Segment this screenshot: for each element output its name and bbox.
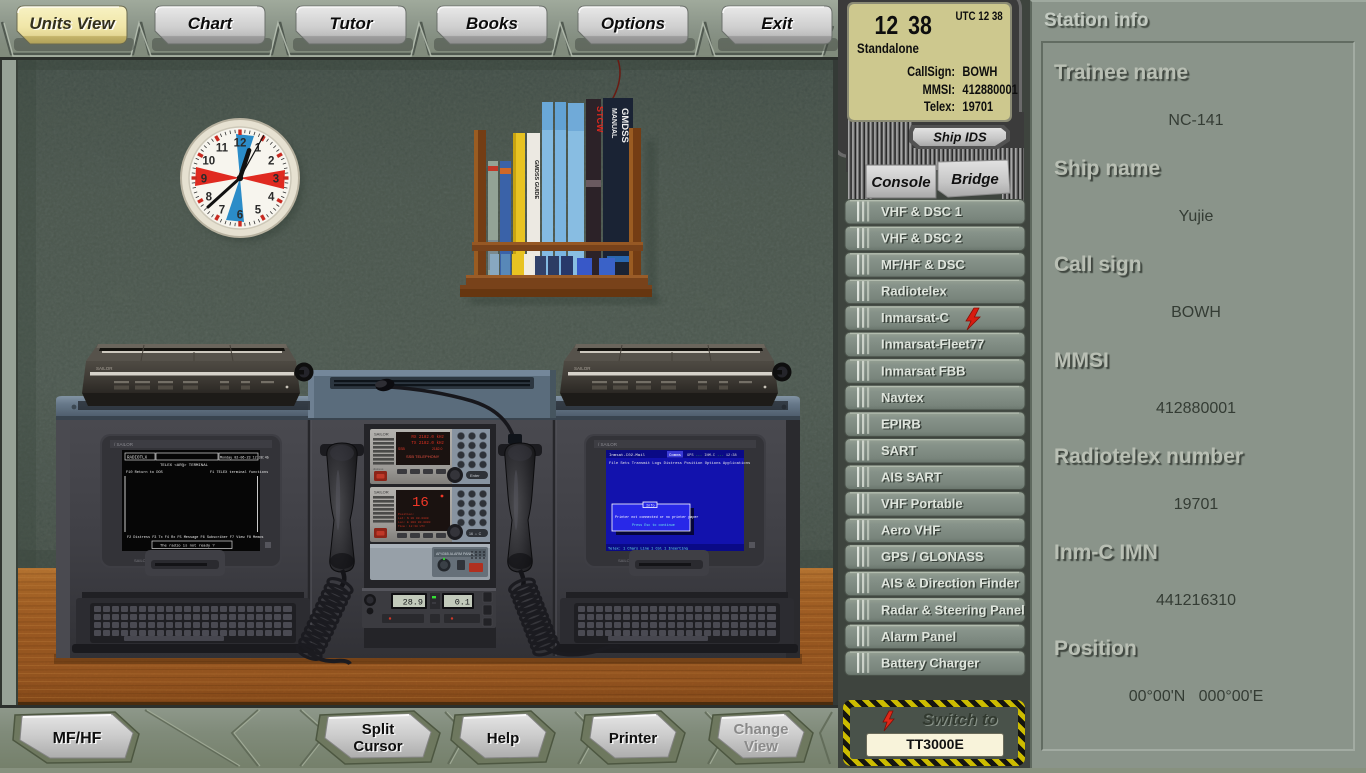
svg-text:19701: 19701 xyxy=(962,99,993,114)
svg-text:SSB: SSB xyxy=(398,447,406,451)
svg-text:Navtex: Navtex xyxy=(881,390,924,405)
svg-text:Lon: E 000 00.0000: Lon: E 000 00.0000 xyxy=(398,521,431,524)
svg-text:Time: 12:38 UTC: Time: 12:38 UTC xyxy=(398,524,425,528)
svg-text:distress: distress xyxy=(373,467,384,471)
svg-text:File Sets Transmit Logs Distre: File Sets Transmit Logs Distress Positio… xyxy=(609,461,750,466)
svg-text:Printer not connected or no pr: Printer not connected or no printer pape… xyxy=(615,515,698,520)
svg-text:RX 2182.0 kHz: RX 2182.0 kHz xyxy=(411,435,444,440)
svg-text:The radio is not ready ?: The radio is not ready ? xyxy=(160,544,215,549)
svg-text:TX 2182.0 kHz: TX 2182.0 kHz xyxy=(411,441,444,446)
svg-text:TELEX <ARQ> TERMINAL: TELEX <ARQ> TERMINAL xyxy=(160,463,209,468)
svg-text:Printer: Printer xyxy=(609,730,658,747)
svg-text:MANUAL: MANUAL xyxy=(610,108,617,139)
svg-text:Press Esc to continue: Press Esc to continue xyxy=(632,523,675,528)
svg-text:SAILOR: SAILOR xyxy=(374,432,389,437)
svg-text:8: 8 xyxy=(206,192,213,204)
svg-text:Split: Split xyxy=(362,721,395,738)
svg-text:0.1: 0.1 xyxy=(455,598,470,608)
svg-text:EPIRB: EPIRB xyxy=(881,416,921,431)
svg-text:412880001: 412880001 xyxy=(962,82,1017,97)
svg-text:16: 16 xyxy=(412,495,429,511)
svg-text:Exit: Exit xyxy=(761,14,794,33)
svg-text:UTC 12 38: UTC 12 38 xyxy=(956,10,1003,23)
svg-text:GMDSS GUIDE: GMDSS GUIDE xyxy=(533,160,539,199)
svg-text:GPS / GLONASS: GPS / GLONASS xyxy=(881,549,984,564)
svg-text:5: 5 xyxy=(255,205,262,217)
svg-text:3: 3 xyxy=(273,174,279,186)
svg-text:AIS SART: AIS SART xyxy=(881,470,942,485)
svg-text:SAILOR: SAILOR xyxy=(96,366,113,371)
svg-text:AP4365 ALARM PANEL: AP4365 ALARM PANEL xyxy=(436,552,475,556)
svg-text:Radar & Steering Panel: Radar & Steering Panel xyxy=(881,602,1025,617)
svg-text:Chart: Chart xyxy=(188,14,234,33)
svg-text:16 ⇔ C: 16 ⇔ C xyxy=(469,532,482,536)
svg-text:Help: Help xyxy=(487,730,520,747)
svg-text:Bridge: Bridge xyxy=(951,171,999,188)
svg-text:28.9: 28.9 xyxy=(403,598,423,608)
svg-text:2182.0: 2182.0 xyxy=(432,447,442,451)
svg-text:9: 9 xyxy=(201,174,207,186)
svg-text:CallSign:: CallSign: xyxy=(907,64,955,79)
svg-text:7: 7 xyxy=(219,205,225,217)
svg-text:Alarm Panel: Alarm Panel xyxy=(881,629,956,644)
svg-text:Cursor: Cursor xyxy=(353,738,402,755)
svg-text:GMDSS: GMDSS xyxy=(619,108,630,143)
svg-text:11: 11 xyxy=(216,142,229,154)
svg-text:SAILOR: SAILOR xyxy=(374,490,389,495)
svg-text:4: 4 xyxy=(268,192,275,204)
svg-text:Standalone: Standalone xyxy=(857,41,919,56)
svg-text:GPS --- INM-C --- 12:38: GPS --- INM-C --- 12:38 xyxy=(687,454,737,458)
svg-text:F2 Distress F3 Tx F4 Rx F5 Mes: F2 Distress F3 Tx F4 Rx F5 Message F6 Su… xyxy=(127,535,264,540)
svg-text:F10 Return to DOS: F10 Return to DOS xyxy=(126,470,163,475)
svg-text:VHF & DSC 1: VHF & DSC 1 xyxy=(881,204,962,219)
svg-text:Inmarsat-Fleet77: Inmarsat-Fleet77 xyxy=(881,337,984,352)
svg-text:Console: Console xyxy=(871,174,930,191)
svg-text:/ SAILOR: / SAILOR xyxy=(598,442,618,447)
svg-text:Monday 02-06-23 12:38:45: Monday 02-06-23 12:38:45 xyxy=(220,456,269,461)
svg-text:12: 12 xyxy=(234,138,247,150)
svg-text:MF/HF & DSC: MF/HF & DSC xyxy=(881,257,965,272)
svg-text:Radiotelex: Radiotelex xyxy=(881,284,948,299)
svg-text:Inmarsat FBB: Inmarsat FBB xyxy=(881,363,966,378)
svg-text:Inmarsat-C: Inmarsat-C xyxy=(881,310,950,325)
svg-text:AIS & Direction Finder: AIS & Direction Finder xyxy=(881,576,1019,591)
svg-text:Battery Charger: Battery Charger xyxy=(881,655,979,670)
svg-text:SSB TELEPHONY: SSB TELEPHONY xyxy=(406,454,440,459)
svg-text:Units View: Units View xyxy=(29,14,116,33)
svg-text:MF/HF: MF/HF xyxy=(53,730,102,747)
svg-text:2: 2 xyxy=(268,156,274,168)
svg-text:Options: Options xyxy=(601,14,665,33)
svg-text:Inmsat-C02-Mail: Inmsat-C02-Mail xyxy=(609,453,646,458)
svg-text:6: 6 xyxy=(237,210,243,222)
svg-text:Tutor: Tutor xyxy=(329,14,374,33)
svg-text:38: 38 xyxy=(908,11,932,41)
svg-text:/ SAILOR: / SAILOR xyxy=(114,442,134,447)
svg-text:Telex:: Telex: xyxy=(924,99,955,114)
svg-text:Books: Books xyxy=(466,14,518,33)
svg-text:Ship IDS: Ship IDS xyxy=(933,130,987,145)
svg-text:F1 TELEX terminal functions: F1 TELEX terminal functions xyxy=(210,470,268,475)
svg-text:Info: Info xyxy=(646,504,655,509)
svg-text:VHF & DSC 2: VHF & DSC 2 xyxy=(881,231,962,246)
svg-text:SART: SART xyxy=(881,443,916,458)
svg-text:Lat: N 00 00.0000: Lat: N 00 00.0000 xyxy=(398,517,429,520)
svg-text:Comms: Comms xyxy=(669,454,682,458)
svg-text:RADIOTLX: RADIOTLX xyxy=(127,457,148,461)
svg-text:Change: Change xyxy=(733,721,788,738)
svg-text:10: 10 xyxy=(202,156,215,168)
svg-text:BOWH: BOWH xyxy=(962,64,997,79)
svg-text:12: 12 xyxy=(875,11,899,41)
svg-text:Position:: Position: xyxy=(398,512,414,516)
svg-text:VHF Portable: VHF Portable xyxy=(881,496,963,511)
svg-text:View: View xyxy=(744,738,778,755)
svg-text:Aero VHF: Aero VHF xyxy=(881,523,940,538)
svg-text:Enter: Enter xyxy=(470,473,480,478)
svg-text:MMSI:: MMSI: xyxy=(922,82,955,97)
